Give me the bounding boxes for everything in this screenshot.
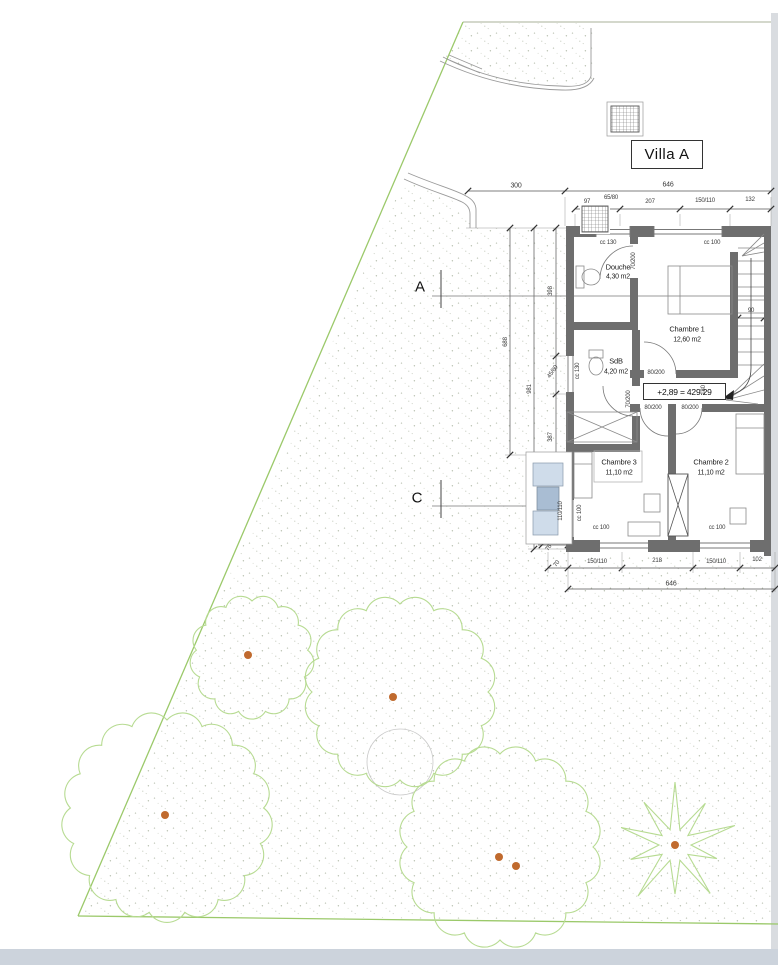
room-area-sdb: 4,20 m2 [604,369,628,376]
labels-layer: Villa A A C 300 646 97 65/80 207 150/110… [0,0,778,965]
section-marker-a: A [415,279,425,296]
room-area-chambre1: 12,60 m2 [673,337,701,344]
door-chambre3: 80/200 [644,405,661,411]
dim-bottom-102: 102 [752,557,761,563]
dim-landing: 180 [701,385,707,394]
bay-size: 110/110 [558,501,564,520]
dim-97: 97 [584,199,590,205]
room-name-chambre1: Chambre 1 [669,325,704,333]
site-plan-page: Villa A A C 300 646 97 65/80 207 150/110… [0,0,778,965]
room-name-douche: Douche [606,263,631,271]
section-marker-c: C [412,490,423,507]
sill-chambre3: cc 100 [593,525,609,531]
door-sdb: 70/200 [626,390,632,407]
room-name-sdb: SdB [609,357,623,365]
sill-bay: cc 100 [577,505,583,521]
dim-bottom-646: 646 [665,581,676,588]
door-chambre2: 80/200 [681,405,698,411]
dim-207: 207 [645,199,654,205]
room-area-chambre2: 11,10 m2 [697,470,724,477]
sill-sdb: cc 130 [575,363,581,379]
dim-bottom-150-110-r: 150/110 [706,559,726,565]
dim-bottom-218: 218 [652,558,661,564]
dim-bottom-70: 70 [553,560,562,569]
dim-left-387: 387 [548,432,554,441]
dim-150-110-top: 150/110 [695,198,715,204]
dim-132: 132 [745,197,754,203]
level-mark-box: +2,89 = 429.29 [643,383,726,400]
room-area-douche: 4,30 m2 [606,274,630,281]
dim-left-981: 981 [527,384,533,393]
dim-left-398: 398 [548,286,554,295]
dim-left-688: 688 [503,337,509,346]
room-area-chambre3: 11,10 m2 [605,470,632,477]
dim-bottom-150-110-l: 150/110 [587,559,607,565]
villa-title-box: Villa A [631,140,703,169]
dim-stair-width: 90 [748,308,754,314]
sill-douche: cc 130 [600,240,616,246]
dim-bay-width: 76 [545,544,554,553]
dim-65-80: 65/80 [604,195,618,201]
sill-chambre2: cc 100 [709,525,725,531]
dim-top-300: 300 [510,183,521,190]
door-douche: 70/200 [631,252,637,269]
room-name-chambre2: Chambre 2 [693,458,728,466]
dim-left-45-60: 45/60 [547,365,560,380]
door-chambre1: 80/200 [647,370,664,376]
room-name-chambre3: Chambre 3 [601,458,636,466]
sill-chambre1: cc 100 [704,240,720,246]
dim-top-646: 646 [662,182,673,189]
page-title: Villa A [645,146,690,163]
